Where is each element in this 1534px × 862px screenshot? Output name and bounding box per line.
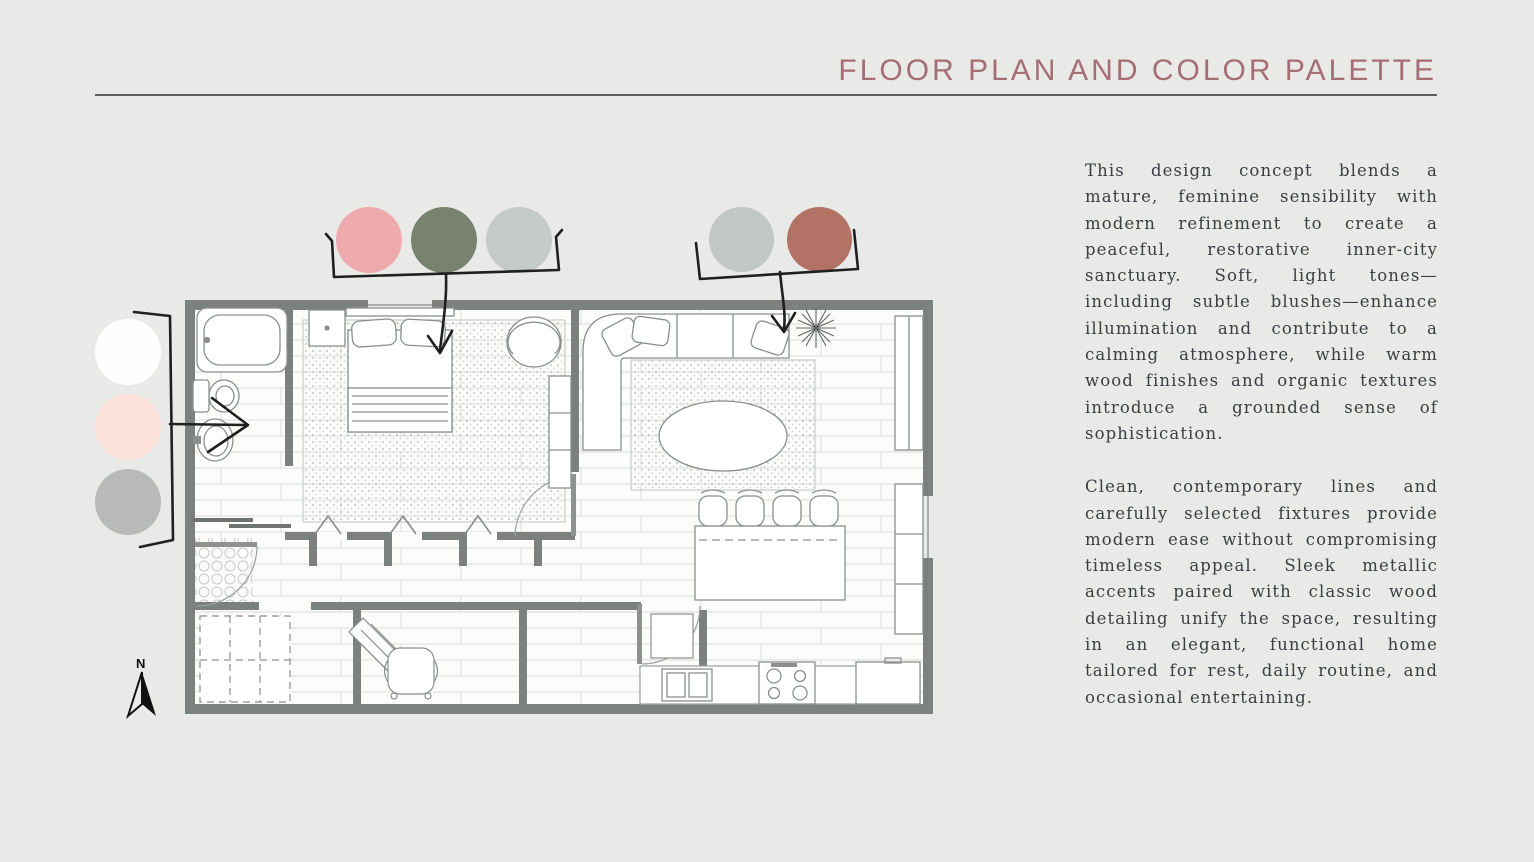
swatch-light-gray <box>709 207 774 272</box>
paragraph-2: Clean, contemporary lines and carefully … <box>1085 474 1438 711</box>
swatch-blush-pink <box>336 207 402 273</box>
fridge <box>856 662 920 704</box>
plant <box>796 308 836 348</box>
stove <box>759 662 815 704</box>
palette-living-group <box>709 207 852 272</box>
bedroom-door-leaf <box>571 474 576 536</box>
entry-door-leaf <box>195 542 257 547</box>
hall-cabinet <box>651 614 693 658</box>
entry-tile-floor <box>191 538 253 608</box>
swatch-white <box>95 319 161 385</box>
bed-pillow <box>351 318 397 347</box>
shower-slider <box>191 518 253 522</box>
reading-chair <box>507 317 561 367</box>
compass-label: N <box>136 656 145 671</box>
swatch-terracotta <box>787 207 852 272</box>
swatch-sage-green <box>411 207 477 273</box>
sofa-pillow <box>631 316 670 347</box>
bedroom <box>303 308 571 534</box>
kitchen-island <box>695 526 845 600</box>
storage-cabinet <box>895 484 923 634</box>
wardrobe <box>200 616 290 702</box>
dresser <box>549 376 571 488</box>
north-compass: N <box>128 656 156 716</box>
floor-plan <box>185 300 933 714</box>
description-text: This design concept blends a mature, fem… <box>1085 158 1438 738</box>
compass-needle-light <box>128 672 142 716</box>
bed-pillow <box>400 319 445 347</box>
bed-headboard <box>346 308 454 316</box>
compass-needle-dark <box>142 672 156 716</box>
coffee-table <box>659 401 787 471</box>
swatch-pale-blush <box>95 394 161 460</box>
swatch-light-gray <box>486 207 552 273</box>
bedroom-wall <box>571 310 579 472</box>
kitchen-sink <box>662 669 712 701</box>
palette-bathroom-group <box>95 319 161 535</box>
paragraph-1: This design concept blends a mature, fem… <box>1085 158 1438 447</box>
desk-chair <box>388 648 434 694</box>
bed-blanket <box>348 388 452 432</box>
toilet-tank <box>193 380 209 412</box>
kitchen-door-leaf <box>637 604 642 664</box>
page-title: FLOOR PLAN AND COLOR PALETTE <box>838 54 1437 88</box>
palette-bedroom-group <box>336 207 552 273</box>
title-underline <box>95 94 1437 96</box>
swatch-mid-gray <box>95 469 161 535</box>
